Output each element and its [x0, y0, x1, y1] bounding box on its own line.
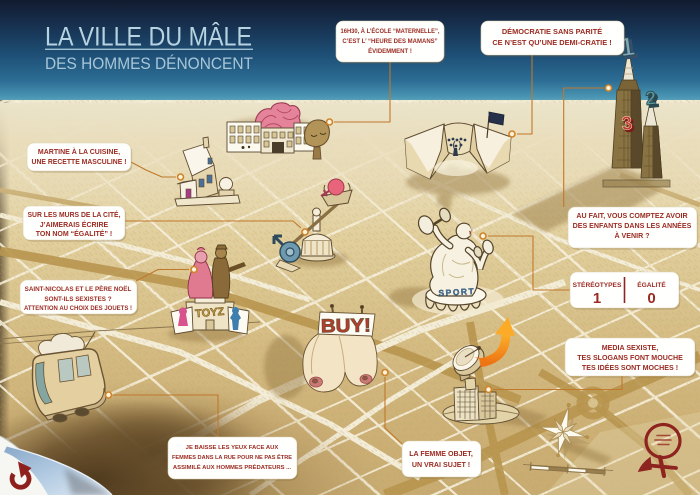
svg-text:3: 3 — [621, 113, 633, 135]
svg-text:ÉGALITÉ: ÉGALITÉ — [637, 280, 666, 289]
svg-text:2: 2 — [645, 88, 658, 110]
svg-text:SONT-ILS SEXISTES ?: SONT-ILS SEXISTES ? — [44, 296, 111, 303]
svg-text:AU FAIT, VOUS COMPTEZ AVOIR: AU FAIT, VOUS COMPTEZ AVOIR — [576, 212, 687, 220]
svg-text:STÉRÉOTYPES: STÉRÉOTYPES — [573, 280, 622, 289]
svg-text:SAINT-NICOLAS ET LE PÈRE NOËL: SAINT-NICOLAS ET LE PÈRE NOËL — [25, 284, 132, 293]
svg-text:J’AIMERAIS ÉCRIRE: J’AIMERAIS ÉCRIRE — [40, 220, 109, 229]
svg-text:ATTENTION AU CHOIX DES JOUETS: ATTENTION AU CHOIX DES JOUETS ! — [24, 305, 132, 312]
svg-text:UN VRAI SUJET !: UN VRAI SUJET ! — [412, 461, 470, 469]
svg-text:TON NOM “ÉGALITÉ” !: TON NOM “ÉGALITÉ” ! — [36, 229, 112, 238]
svg-text:UNE RECETTE MASCULINE !: UNE RECETTE MASCULINE ! — [32, 159, 127, 166]
svg-text:TOYZ: TOYZ — [195, 306, 225, 321]
svg-text:SPORT: SPORT — [438, 286, 475, 298]
svg-text:DÉMOCRATIE SANS PARITÉ: DÉMOCRATIE SANS PARITÉ — [502, 27, 602, 36]
svg-text:C’EST L’ “HEURE DES MAMANS”: C’EST L’ “HEURE DES MAMANS” — [342, 39, 437, 45]
svg-text:CE N’EST QU’UNE DEMI-CRATIE !: CE N’EST QU’UNE DEMI-CRATIE ! — [492, 38, 611, 47]
svg-text:16H30, À L’ÉCOLE “MATERNELLE”: 16H30, À L’ÉCOLE “MATERNELLE”, — [341, 27, 440, 35]
svg-text:LA FEMME OBJET,: LA FEMME OBJET, — [409, 450, 473, 458]
svg-text:JE BAISSE LES YEUX FACE AUX: JE BAISSE LES YEUX FACE AUX — [186, 445, 279, 451]
svg-text:DES HOMMES DÉNONCENT: DES HOMMES DÉNONCENT — [45, 54, 253, 73]
svg-text:FEMMES DANS LA RUE POUR NE PAS: FEMMES DANS LA RUE POUR NE PAS ÊTRE — [172, 453, 292, 461]
svg-text:1: 1 — [593, 290, 601, 307]
svg-text:TES SLOGANS FONT MOUCHE: TES SLOGANS FONT MOUCHE — [577, 354, 683, 362]
svg-text:TES IDÉES SONT MOCHES !: TES IDÉES SONT MOCHES ! — [582, 363, 678, 372]
svg-text:MARTINE À LA CUISINE,: MARTINE À LA CUISINE, — [38, 147, 120, 156]
svg-text:ÉVIDEMMENT !: ÉVIDEMMENT ! — [368, 47, 412, 55]
svg-text:0: 0 — [647, 290, 655, 307]
svg-text:ASSIMILÉ AUX HOMMES PRÉDATEURS: ASSIMILÉ AUX HOMMES PRÉDATEURS ... — [173, 463, 292, 471]
svg-text:MEDIA SEXISTE,: MEDIA SEXISTE, — [602, 344, 659, 352]
svg-text:DES ENFANTS DANS LES ANNÉES: DES ENFANTS DANS LES ANNÉES — [573, 221, 692, 230]
svg-text:LA VILLE DU MÂLE: LA VILLE DU MÂLE — [45, 21, 252, 52]
svg-text:SUR LES MURS DE LA CITÉ,: SUR LES MURS DE LA CITÉ, — [28, 210, 121, 219]
svg-text:À VENIR ?: À VENIR ? — [614, 231, 649, 240]
